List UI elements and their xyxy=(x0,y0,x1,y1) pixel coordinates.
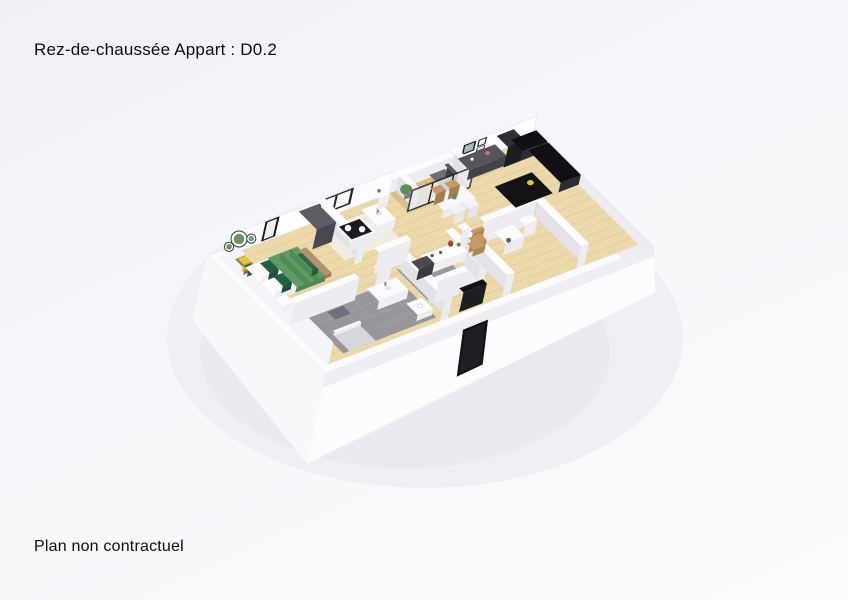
console-vase-brown xyxy=(430,254,434,257)
toilet-lid xyxy=(417,304,422,308)
plan-disclaimer: Plan non contractuel xyxy=(34,538,184,556)
console-plant-green xyxy=(457,243,461,247)
sideboard-decor-pink xyxy=(485,151,490,155)
wall-decor-plant-small2 xyxy=(248,236,254,242)
cabinet-vase-plant xyxy=(377,189,381,193)
console-vase-red xyxy=(439,251,442,254)
cooktop-pan-2 xyxy=(359,226,365,232)
cooktop-pan-1 xyxy=(345,225,351,231)
wall-decor-plant-small1 xyxy=(226,244,232,250)
balcony-plant xyxy=(400,184,412,194)
console-twigs-red xyxy=(448,240,453,246)
wall-decor-plant-large xyxy=(234,234,244,244)
decor-yellow-item xyxy=(527,180,534,185)
dining-table-plant xyxy=(452,195,457,200)
vanity-basin xyxy=(385,286,391,291)
washing-machine-door xyxy=(506,238,511,243)
floor-plan-3d-render xyxy=(0,0,848,600)
sideboard-decor-white xyxy=(470,158,473,161)
